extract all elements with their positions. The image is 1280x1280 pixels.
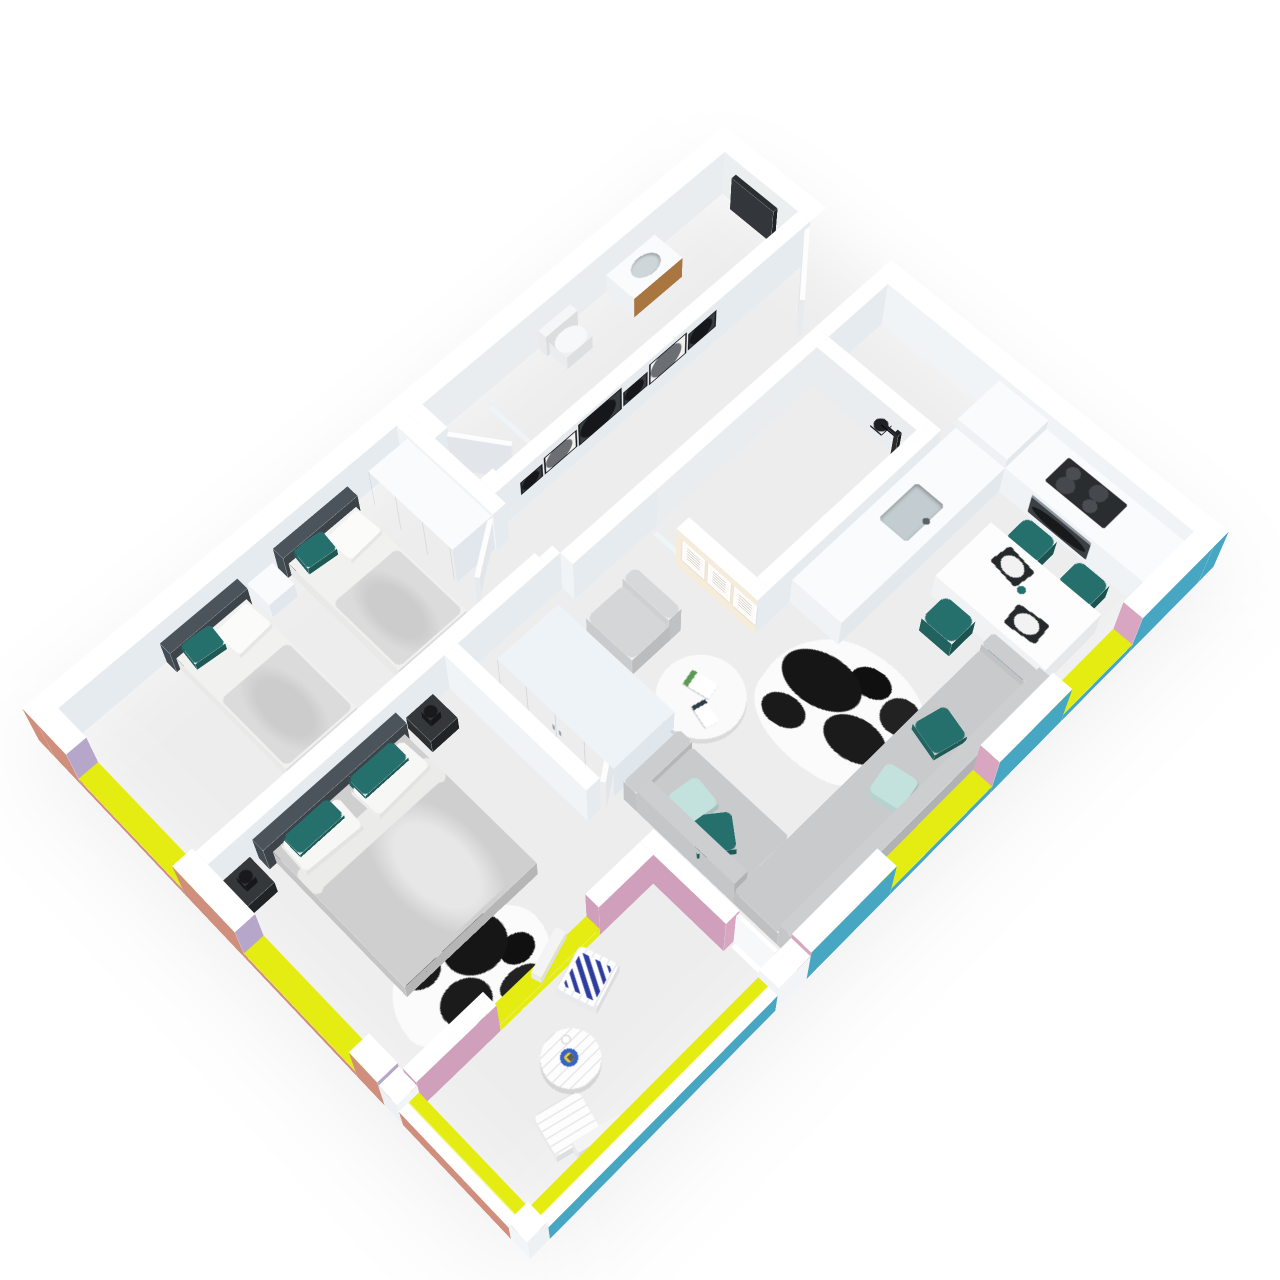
coffee-cup: [561, 1034, 571, 1044]
gallery-frame-6: [520, 464, 543, 495]
placemat-2: [1003, 603, 1050, 644]
text-art-lines: [738, 594, 752, 617]
wardrobe-living-handles: [552, 724, 555, 731]
text-art-lines: [712, 571, 726, 594]
scene-perspective: [0, 0, 1280, 1280]
magazine-2: [691, 699, 719, 728]
text-art-lines: [687, 549, 700, 572]
floorplan-stage: [0, 0, 1280, 1280]
magazine-1: [683, 670, 719, 699]
table-bottle: [1015, 584, 1028, 595]
